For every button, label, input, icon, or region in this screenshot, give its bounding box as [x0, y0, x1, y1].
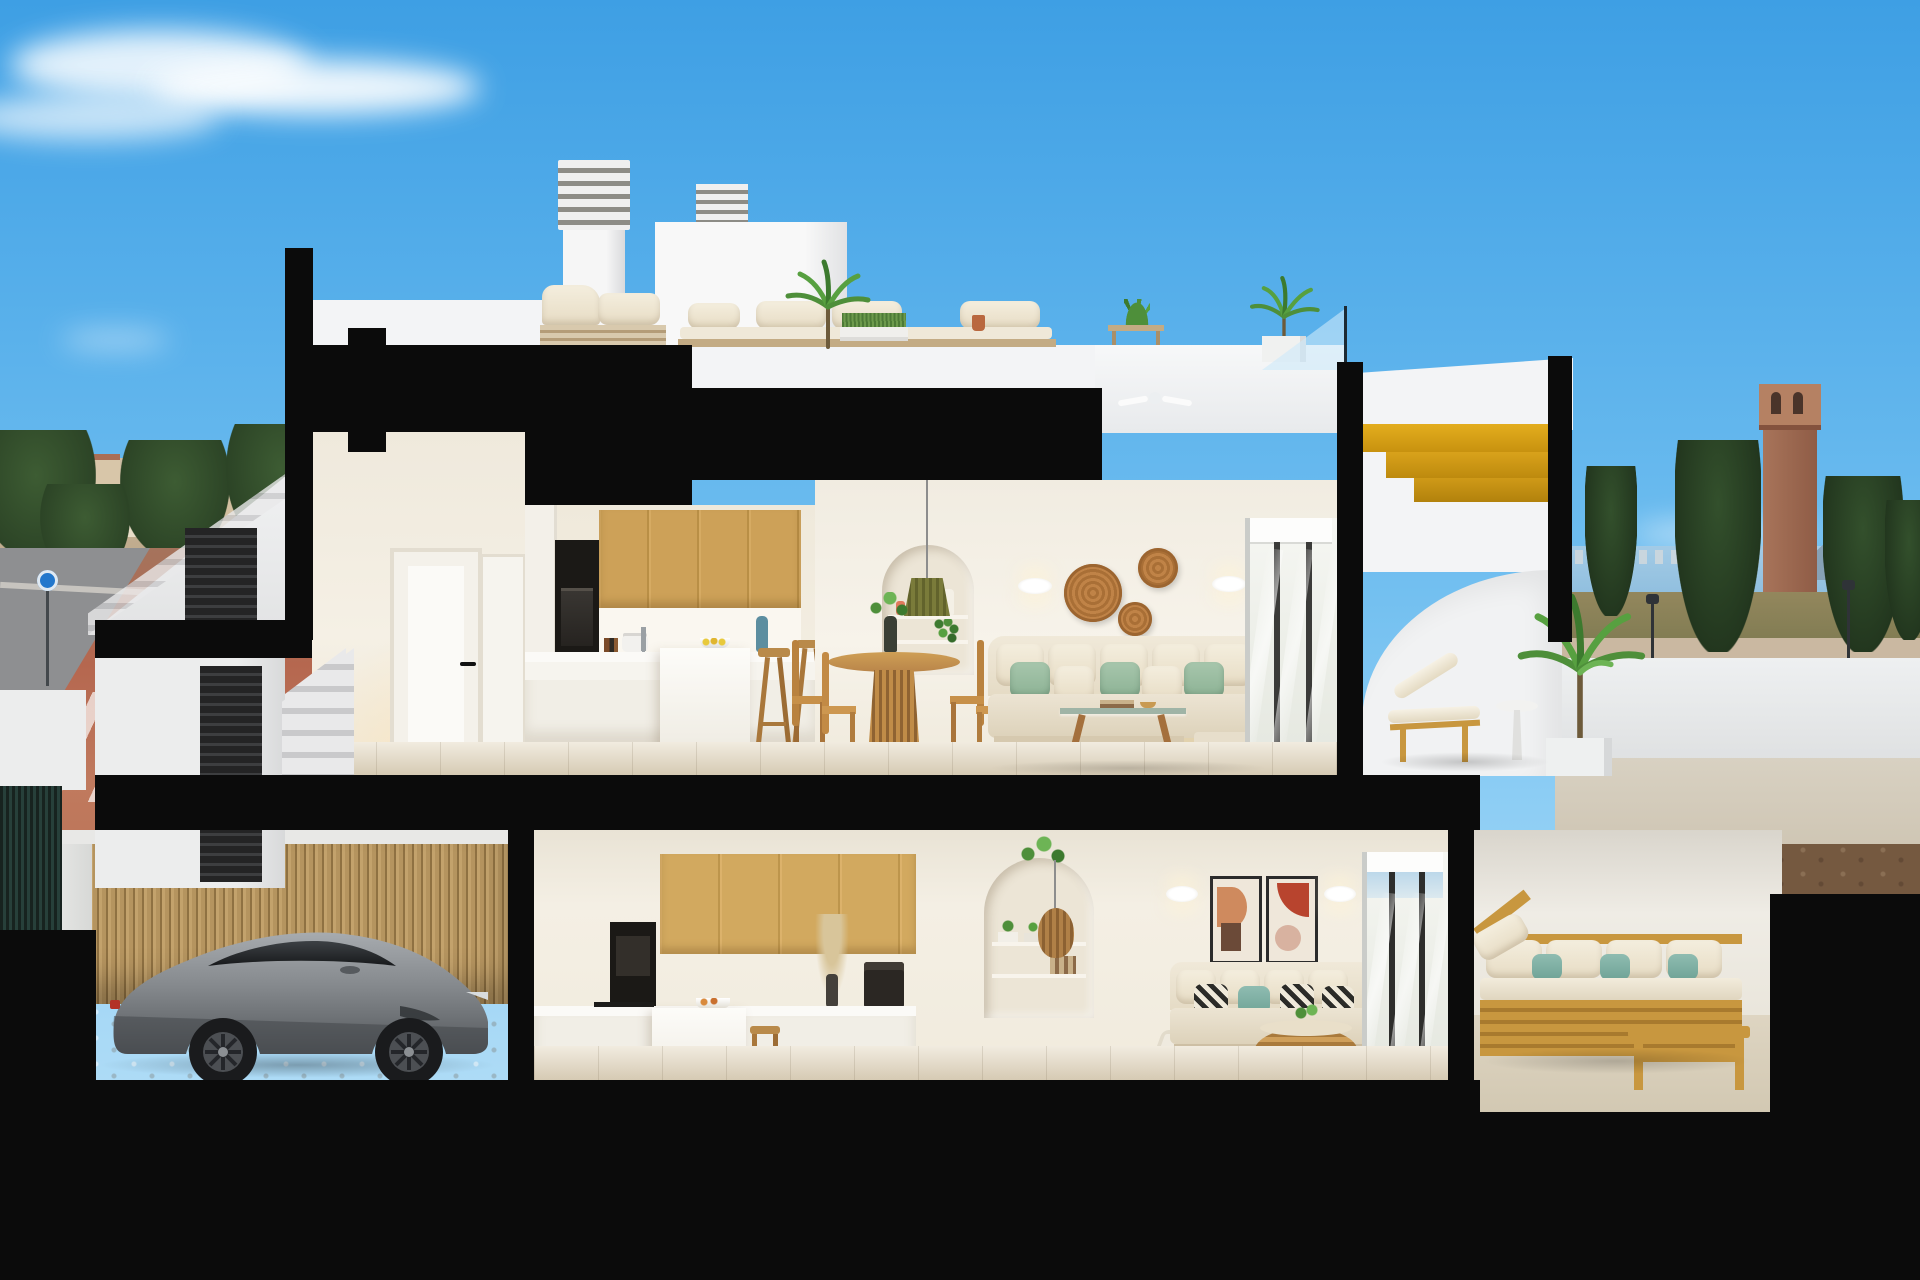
- corner-planter: [0, 690, 86, 790]
- cut-roof-slab-a: [312, 345, 527, 432]
- roof-terrace: [520, 255, 1350, 350]
- corner-hedge: [0, 786, 62, 932]
- roof-fascia-right: [690, 345, 1100, 390]
- louvre-window: [185, 528, 257, 624]
- faucet: [642, 630, 645, 652]
- wall-sconce-lower: [1166, 886, 1198, 902]
- cut-foundation-main: [0, 1080, 1480, 1280]
- roof-lounge-chair: [542, 285, 600, 325]
- oven-glass-lower: [616, 936, 650, 976]
- floor-lower: [534, 1046, 1448, 1080]
- stair-gold-step: [1414, 478, 1554, 502]
- abstract-artwork: [1210, 876, 1262, 964]
- cut-roof-slab-c: [690, 388, 1102, 480]
- lamppost-head: [1842, 580, 1855, 590]
- spice-bottles: [604, 638, 618, 652]
- breakfast-tray: [696, 998, 730, 1008]
- rattan-pendant: [1038, 908, 1074, 958]
- entrance-gate: [200, 666, 262, 882]
- sliding-glass-door-upper: [1245, 518, 1347, 775]
- oak-upper-cabinets: [599, 510, 801, 608]
- rattan-disc: [1064, 564, 1122, 622]
- rattan-disc: [1118, 602, 1152, 636]
- cut-left-terrace-slab: [95, 620, 312, 658]
- upper-floor: [312, 430, 1337, 775]
- terrace-shadow: [1482, 1048, 1752, 1074]
- stair-gold-step: [1358, 424, 1550, 452]
- cut-roof-slab-b: [525, 345, 692, 505]
- abstract-artwork: [1266, 876, 1318, 964]
- fruit-bowl: [700, 638, 730, 648]
- cypress-tree: [1885, 500, 1920, 640]
- pampas-vase: [812, 914, 852, 1010]
- cut-garage-wall: [508, 830, 534, 1080]
- aloe-pot: [1124, 299, 1150, 325]
- cloud: [60, 330, 170, 350]
- oven-glass: [561, 588, 593, 646]
- watchtower-window: [1771, 392, 1781, 414]
- roof-lounge-base: [540, 325, 666, 345]
- niche-books: [1050, 956, 1076, 974]
- table-plant: [866, 592, 912, 622]
- side-table-legs: [1112, 331, 1160, 345]
- coffee-machine: [864, 962, 904, 1008]
- niche-pot-plant: [998, 920, 1018, 942]
- wall-sconce: [1018, 578, 1052, 594]
- table-plant-small: [1294, 1004, 1320, 1022]
- chimney-small-cap: [696, 184, 748, 226]
- teal-pillow: [1600, 954, 1630, 980]
- wall-sconce: [1212, 576, 1246, 592]
- terrace-palm-icon: [1510, 580, 1650, 746]
- rattan-disc: [1138, 548, 1178, 588]
- rattan-pendant-cord: [1054, 860, 1056, 910]
- lower-terrace: [1472, 830, 1782, 1115]
- chimney-louvre-cap: [558, 160, 630, 230]
- terracotta-pot: [972, 315, 985, 331]
- ceiling-fan: [1118, 390, 1194, 408]
- lower-floor: [534, 830, 1448, 1080]
- lamppost: [1847, 586, 1850, 662]
- table-books: [1100, 700, 1134, 708]
- cut-left-column: [285, 248, 313, 640]
- stair-gold-step: [1386, 452, 1552, 478]
- cut-lower-right-wall: [1448, 830, 1474, 1115]
- cut-foundation-terrace: [1472, 1112, 1782, 1280]
- blue-vase: [756, 616, 768, 652]
- teal-pillow: [1532, 954, 1562, 980]
- oak-cabinets-lower: [660, 854, 916, 954]
- stair-top-wall: [1345, 358, 1573, 430]
- scene: [0, 0, 1920, 1280]
- watchtower-top: [1759, 384, 1821, 430]
- entrance-outer-steps: [282, 648, 354, 776]
- cut-mid-slab: [95, 775, 1480, 830]
- pendant-cord: [926, 480, 928, 580]
- cut-wall-upper-right: [1337, 362, 1363, 830]
- watchtower-window: [1793, 392, 1803, 414]
- lounger-shadow: [1380, 752, 1550, 772]
- niche-top-plant: [1016, 836, 1068, 870]
- wall-sconce-lower: [1324, 886, 1356, 902]
- terrace-planter: [1546, 738, 1612, 776]
- cut-wall-stair-right: [1548, 356, 1572, 642]
- teal-pillow: [1668, 954, 1698, 980]
- hob: [594, 1002, 654, 1007]
- roof-lounge-chair: [598, 293, 660, 325]
- palm-plant-icon: [778, 252, 878, 352]
- outdoor-seat: [1480, 978, 1742, 1000]
- roof-sofa-back: [688, 303, 740, 329]
- cut-foundation-right: [1770, 894, 1920, 1280]
- hall-door-handle: [460, 662, 476, 666]
- sofa-shadow: [988, 760, 1268, 776]
